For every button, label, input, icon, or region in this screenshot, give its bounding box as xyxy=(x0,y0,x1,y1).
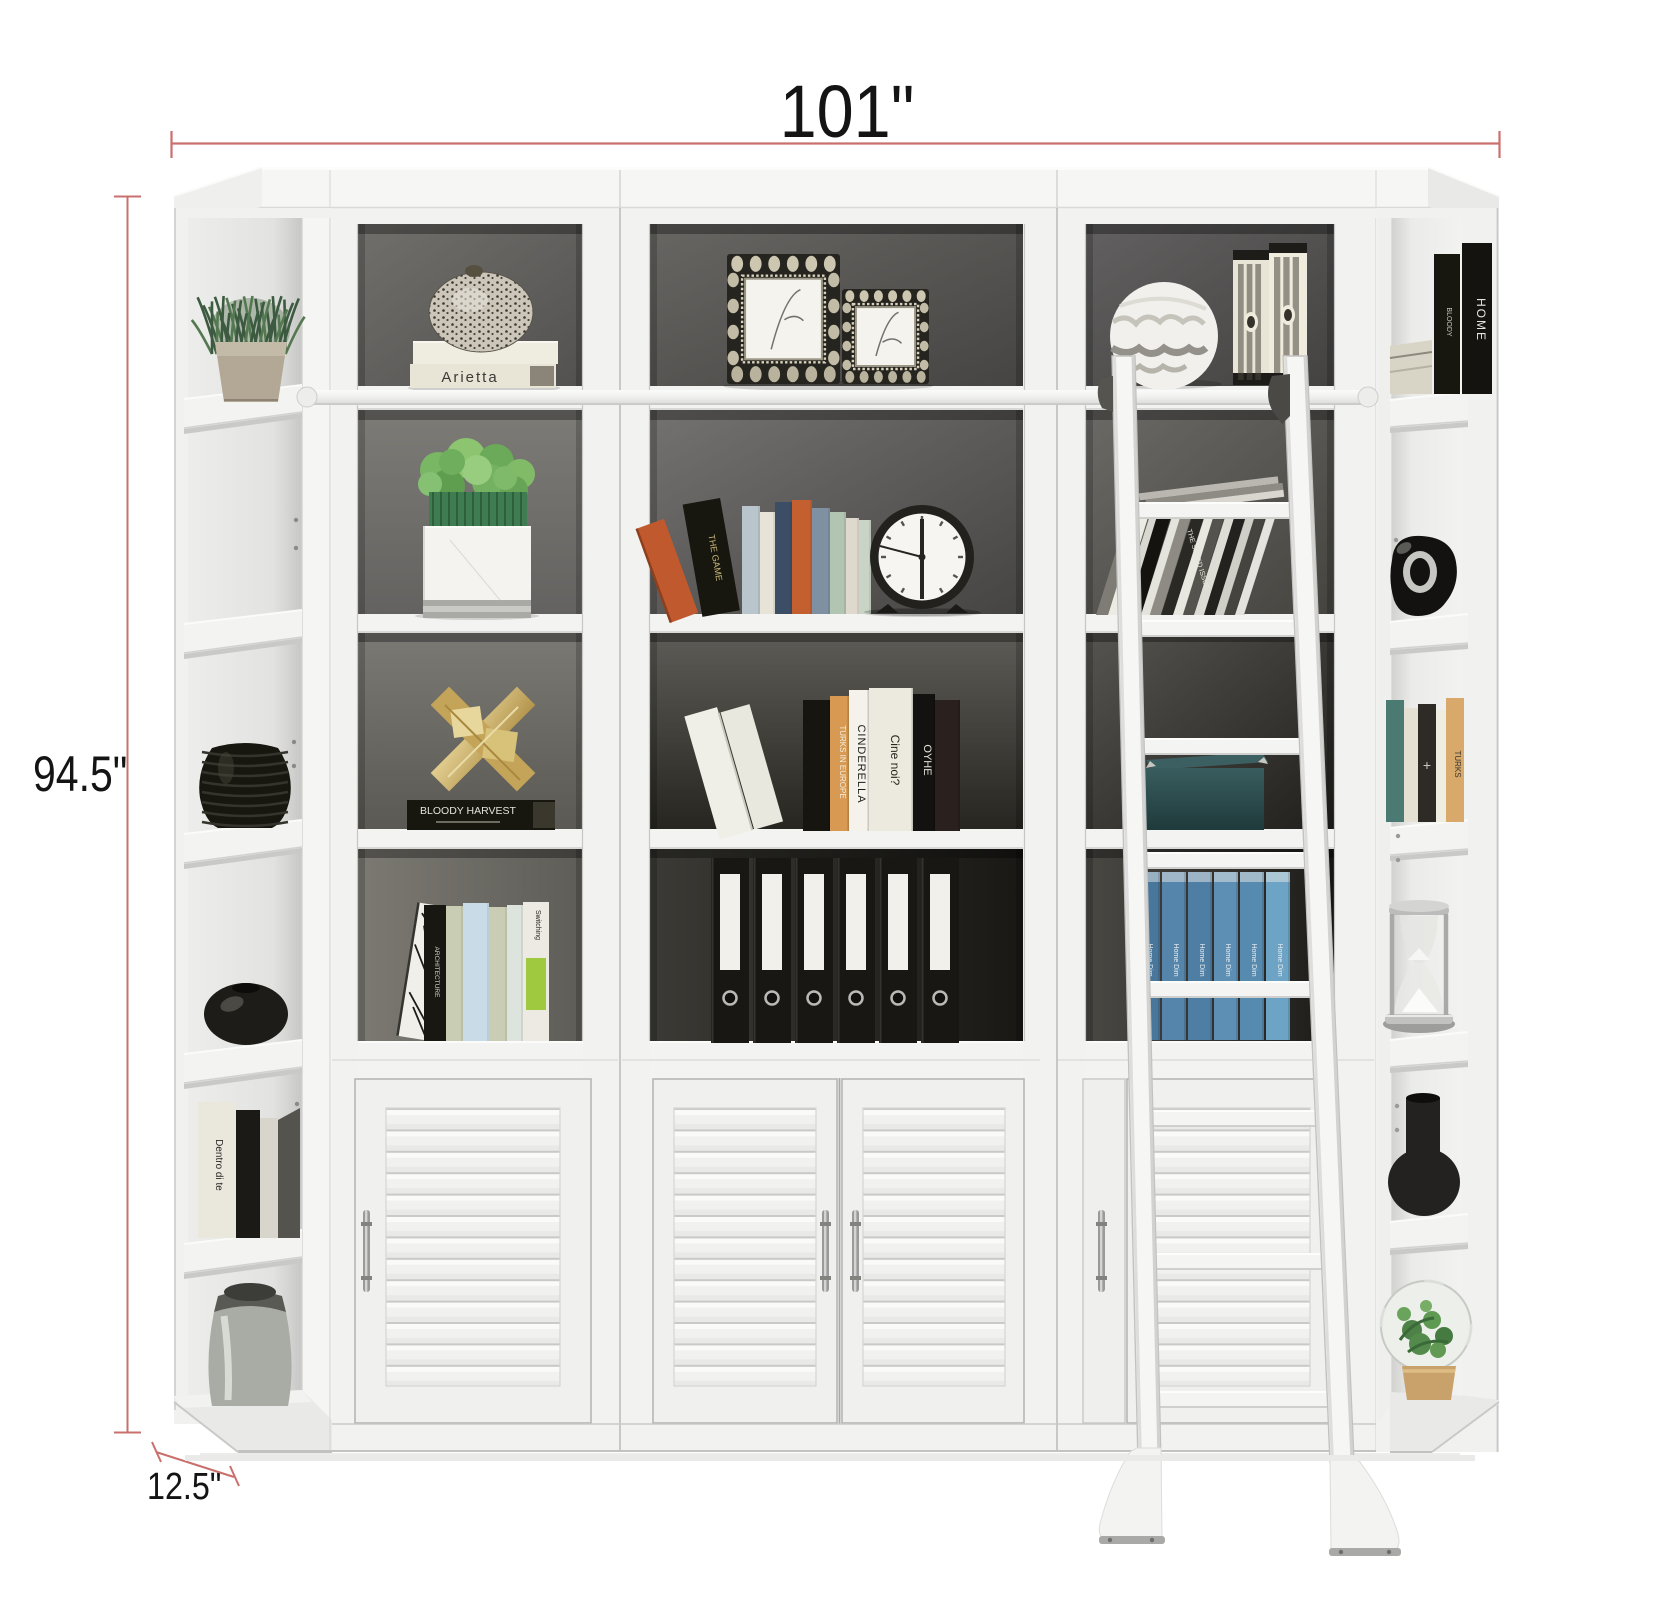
svg-text:12.5": 12.5" xyxy=(147,1466,221,1508)
svg-text:BLOODY HARVEST: BLOODY HARVEST xyxy=(420,805,516,817)
svg-text:BLOODY: BLOODY xyxy=(1445,307,1452,337)
svg-text:HOME: HOME xyxy=(1474,298,1488,342)
svg-text:Home Dim: Home Dim xyxy=(1198,943,1205,976)
svg-text:Cine noi?: Cine noi? xyxy=(888,735,902,786)
svg-text:Home Dim: Home Dim xyxy=(1250,943,1257,976)
svg-text:ARCHITECTURE: ARCHITECTURE xyxy=(433,947,440,999)
svg-text:TURKS: TURKS xyxy=(1453,750,1462,777)
svg-text:OYHE: OYHE xyxy=(921,744,933,775)
svg-text:101": 101" xyxy=(780,70,915,153)
svg-text:CINDERELLA: CINDERELLA xyxy=(855,724,867,803)
svg-text:Home Dim: Home Dim xyxy=(1276,943,1283,976)
svg-text:Dentro di te: Dentro di te xyxy=(213,1139,224,1191)
svg-text:Home Dim: Home Dim xyxy=(1224,943,1231,976)
svg-text:+: + xyxy=(1423,757,1431,773)
svg-text:Home Dim: Home Dim xyxy=(1172,943,1179,976)
svg-text:94.5": 94.5" xyxy=(33,746,127,802)
svg-text:TURKS IN EUROPE: TURKS IN EUROPE xyxy=(838,725,847,798)
svg-text:Switching: Switching xyxy=(534,910,541,940)
svg-text:Arietta: Arietta xyxy=(441,369,498,386)
